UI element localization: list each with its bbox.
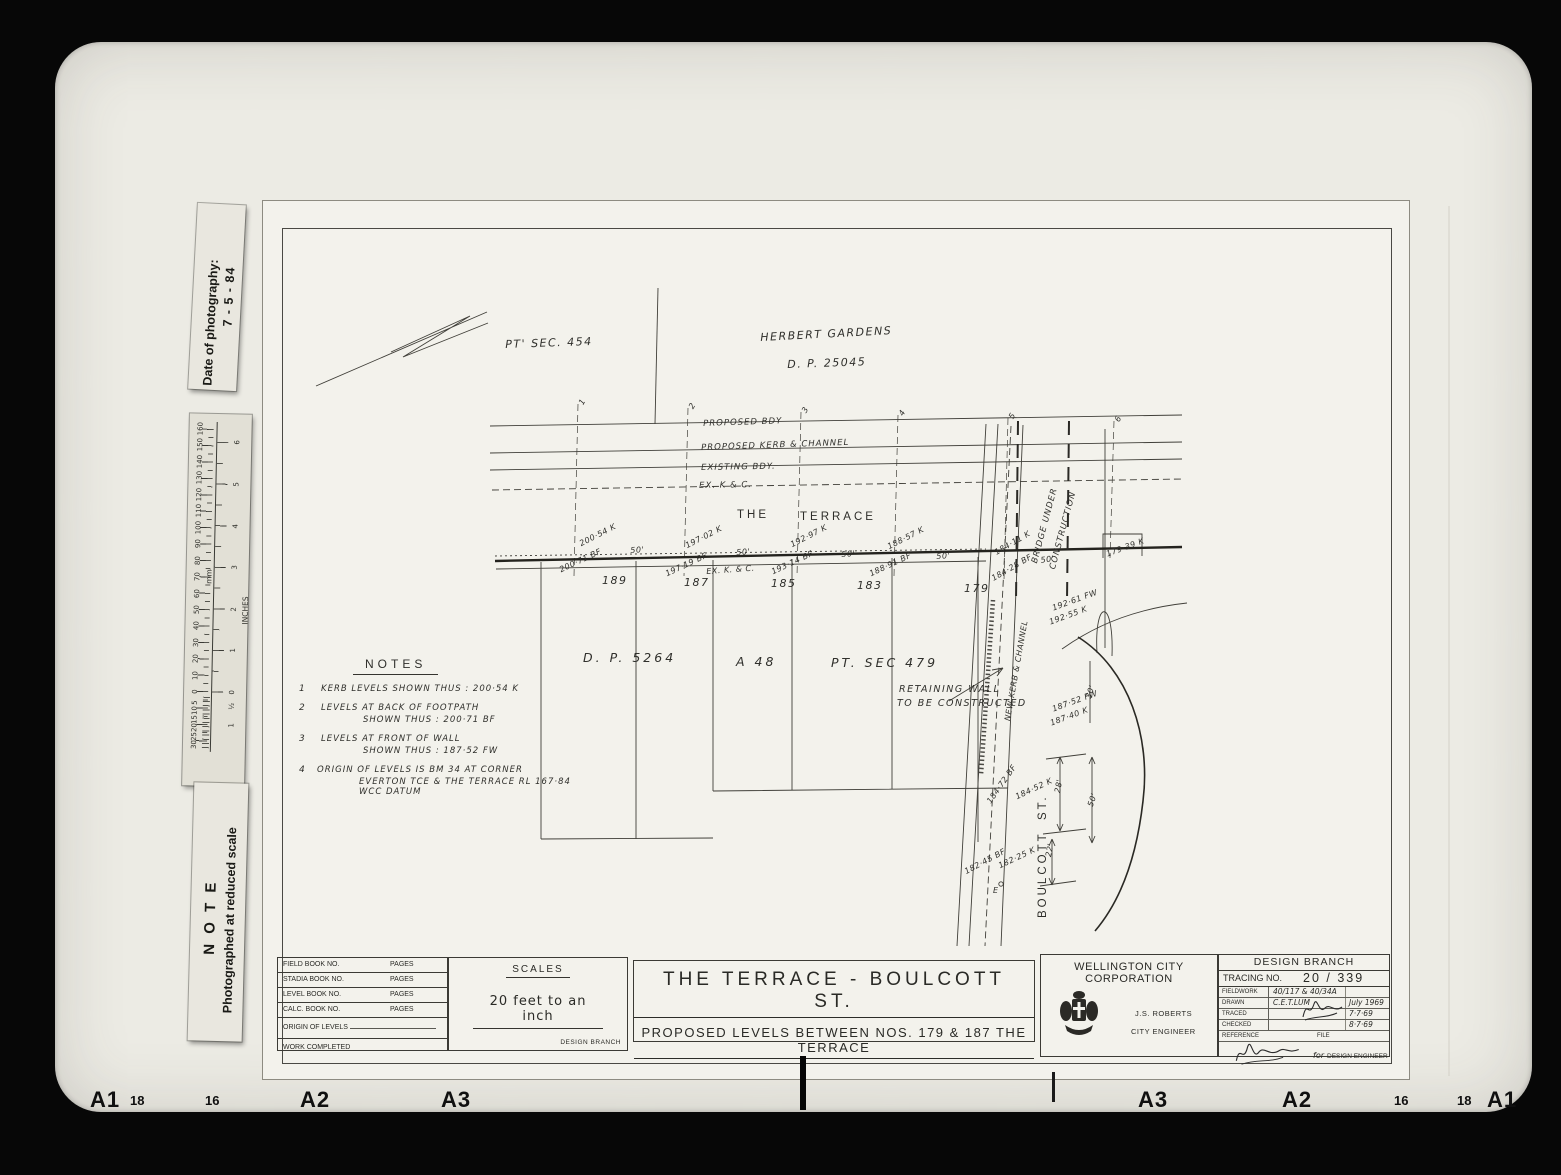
- ruler-tick-label: ½: [228, 703, 236, 710]
- survey-book-table: FIELD BOOK NO.PAGESSTADIA BOOK NO.PAGESL…: [277, 957, 448, 1051]
- ruler-tick-label: 1: [229, 648, 237, 653]
- plan-label: 179·39 K: [1105, 536, 1145, 558]
- tracing-number-row: TRACING NO. 20 / 339: [1219, 971, 1389, 987]
- ruler-tick-label: 5: [232, 482, 240, 487]
- ruler-tick-label: 3: [231, 565, 239, 570]
- note-label-title: N O T E: [201, 879, 220, 955]
- ruler-tick-label: 140: [196, 455, 204, 469]
- design-branch-row-date: 8·7·69: [1345, 1020, 1389, 1030]
- date-label-value: 7 - 5 - 84: [220, 266, 237, 327]
- plan-label: 185: [771, 577, 797, 590]
- note-text: LEVELS AT BACK OF FOOTPATHSHOWN THUS : 2…: [321, 703, 496, 725]
- ruler-labels: 1601501401301201101009080706050403020100…: [190, 413, 252, 414]
- plan-label: 188·57 K: [886, 525, 926, 551]
- ruler-tick-label: 110: [195, 504, 203, 518]
- ruler-tick-label: 1: [227, 723, 235, 728]
- checker-signature-mark: [1299, 997, 1345, 1028]
- note-line: EVERTON TCE & THE TERRACE RL 167·84 WCC …: [359, 777, 579, 797]
- plan-label: BOULCOTT: [1037, 831, 1049, 918]
- plan-label: E: [993, 886, 999, 895]
- plan-label: 193·14 BF: [770, 549, 815, 576]
- plan-label: 183: [857, 579, 883, 592]
- note-number: 3: [299, 734, 321, 756]
- plan-label: 184·72 BF: [985, 763, 1018, 805]
- note-line: LEVELS AT FRONT OF WALL: [321, 734, 498, 744]
- note-item: 4ORIGIN OF LEVELS IS BM 34 AT CORNEREVER…: [299, 765, 579, 797]
- ruler-tick-label: 0: [191, 689, 199, 694]
- plan-label: 6: [1113, 414, 1124, 423]
- drawing-title: THE TERRACE - BOULCOTT ST.: [634, 969, 1034, 1018]
- tracing-number-label: TRACING NO.: [1223, 973, 1282, 983]
- ruler-inches-unit: INCHES: [240, 596, 250, 624]
- scale-ruler: mm INCHES 160150140130120110100908070605…: [182, 413, 252, 786]
- survey-book-row: FIELD BOOK NO.PAGES: [278, 958, 447, 973]
- design-branch-row-label: TRACED: [1219, 1009, 1269, 1019]
- ruler-tick-label: 5: [191, 700, 199, 705]
- plan-label: 50': [630, 545, 644, 555]
- ruler-tick-label: 70: [193, 572, 201, 581]
- registration-mark: [800, 1056, 806, 1110]
- plan-label: 50': [936, 551, 950, 561]
- ruler-sub-ticks: [202, 697, 210, 749]
- design-branch-row-label: FIELDWORK: [1219, 987, 1269, 997]
- city-engineer-title: CITY ENGINEER: [1131, 1027, 1196, 1036]
- plan-label: D. P. 25045: [787, 355, 866, 371]
- drawing-subtitle: PROPOSED LEVELS BETWEEN NOS. 179 & 187 T…: [634, 1025, 1034, 1059]
- design-branch-box: DESIGN BRANCH TRACING NO. 20 / 339 FIELD…: [1218, 954, 1390, 1057]
- design-branch-row-date: 7·7·69: [1345, 1009, 1389, 1019]
- ruler-mm-unit: mm: [204, 569, 213, 584]
- scales-footer: DESIGN BRANCH: [560, 1039, 621, 1046]
- survey-book-label: FIELD BOOK NO.: [283, 961, 339, 968]
- plan-label: ST.: [1037, 794, 1049, 820]
- plan-label: 28': [1053, 778, 1064, 793]
- ruler-tick-label: 100: [194, 521, 202, 535]
- signature-for: for: [1313, 1051, 1324, 1060]
- reference-label: REFERENCE: [1222, 1033, 1259, 1039]
- scales-title: SCALES: [506, 964, 569, 978]
- origin-of-levels-row: ORIGIN OF LEVELS: [278, 1018, 447, 1039]
- note-item: 2LEVELS AT BACK OF FOOTPATHSHOWN THUS : …: [299, 703, 579, 725]
- ruler-tick-label: 120: [195, 488, 203, 502]
- plan-label: PT. SEC 479: [831, 655, 938, 670]
- plan-label: 50': [736, 547, 750, 557]
- note-number: 1: [299, 684, 321, 694]
- ruler-tick-label: 6: [233, 440, 241, 445]
- pages-label: PAGES: [390, 973, 414, 987]
- work-completed-row: WORK COMPLETED: [278, 1039, 447, 1057]
- survey-book-label: CALC. BOOK NO.: [283, 1006, 340, 1013]
- design-engineer-signature-row: for DESIGN ENGINEER: [1219, 1042, 1389, 1064]
- city-crest-icon: [1059, 989, 1099, 1044]
- scanned-engineering-plan: PT' SEC. 454HERBERT GARDENSD. P. 25045PR…: [0, 0, 1561, 1175]
- ruler-tick-label: 40: [192, 621, 200, 630]
- note-text: ORIGIN OF LEVELS IS BM 34 AT CORNEREVERT…: [317, 765, 579, 797]
- note-label-text: Photographed at reduced scale: [220, 827, 239, 1013]
- ruler-tick-label: 20: [192, 654, 200, 663]
- design-branch-row-label: DRAWN: [1219, 998, 1269, 1008]
- plan-label: A 48: [736, 654, 776, 669]
- plan-label: 197·19 BF: [664, 551, 709, 578]
- design-engineer-title: DESIGN ENGINEER: [1327, 1053, 1388, 1060]
- ruler-tick-label: 30: [190, 740, 198, 749]
- plan-label: EX. K. & C.: [706, 564, 755, 576]
- ruler-tick-label: 50: [193, 605, 201, 614]
- ruler-tick-label: 2: [230, 607, 238, 612]
- tracing-number-value: 20 / 339: [1303, 971, 1364, 986]
- plan-label: RETAINING WALL: [899, 684, 1000, 695]
- file-label: FILE: [1317, 1031, 1330, 1041]
- origin-of-levels-line: [350, 1028, 436, 1029]
- plan-label: 192·97 K: [789, 523, 829, 549]
- plan-label: 2: [687, 401, 698, 410]
- plan-label: EXISTING BDY.: [701, 462, 776, 473]
- design-branch-row-date: July 1969: [1345, 998, 1389, 1008]
- survey-book-row: STADIA BOOK NO.PAGES: [278, 973, 447, 988]
- design-branch-row-date: [1345, 987, 1389, 997]
- plan-label: 50': [841, 549, 855, 559]
- plan-label: 3: [800, 405, 811, 414]
- scale-value: 20 feet to an inch: [473, 994, 603, 1029]
- corporation-name: WELLINGTON CITY CORPORATION: [1041, 961, 1217, 985]
- plan-label: 200·54 K: [578, 522, 618, 548]
- plan-label: TO BE CONSTRUCTED: [897, 698, 1027, 709]
- note-line: ORIGIN OF LEVELS IS BM 34 AT CORNER: [317, 765, 579, 775]
- pages-label: PAGES: [390, 988, 414, 1002]
- date-label-title: Date of photography:: [200, 259, 221, 386]
- note-item: 3LEVELS AT FRONT OF WALLSHOWN THUS : 187…: [299, 734, 579, 756]
- city-engineer-name: J.S. ROBERTS: [1135, 1009, 1192, 1018]
- plan-label: D. P. 5264: [583, 650, 676, 665]
- note-number: 4: [299, 765, 317, 797]
- plan-label: 179: [964, 582, 990, 595]
- reduced-scale-note-label: N O T E Photographed at reduced scale: [188, 782, 249, 1041]
- plan-label: THE: [737, 509, 769, 521]
- ruler-tick-label: 10: [191, 671, 199, 680]
- ruler-tick-label: 30: [192, 638, 200, 647]
- ruler-tick-label: 60: [193, 589, 201, 598]
- ruler-tick-label: 20: [190, 723, 198, 732]
- notes-items: 1KERB LEVELS SHOWN THUS : 200·54 K2LEVEL…: [299, 684, 579, 797]
- ruler-tick-label: 80: [194, 556, 202, 565]
- pages-label: PAGES: [390, 958, 414, 972]
- survey-book-row: LEVEL BOOK NO.PAGES: [278, 988, 447, 1003]
- corporation-box: WELLINGTON CITY CORPORATION J.S. ROBERTS…: [1040, 954, 1218, 1057]
- plan-label: HERBERT GARDENS: [760, 324, 893, 344]
- survey-book-label: LEVEL BOOK NO.: [283, 991, 341, 998]
- notes-title: NOTES: [353, 657, 438, 675]
- plan-label: 197·02 K: [684, 524, 724, 550]
- design-branch-header: DESIGN BRANCH: [1219, 955, 1389, 971]
- note-number: 2: [299, 703, 321, 725]
- note-text: KERB LEVELS SHOWN THUS : 200·54 K: [321, 684, 519, 694]
- plan-label: 5: [1007, 411, 1018, 420]
- survey-book-row: CALC. BOOK NO.PAGES: [278, 1003, 447, 1018]
- ruler-tick-label: 4: [232, 524, 240, 529]
- ruler-tick-label: 10: [191, 706, 199, 715]
- note-line: SHOWN THUS : 200·71 BF: [363, 715, 496, 725]
- scales-box: SCALES 20 feet to an inch DESIGN BRANCH: [448, 957, 628, 1051]
- note-item: 1KERB LEVELS SHOWN THUS : 200·54 K: [299, 684, 579, 694]
- note-text: LEVELS AT FRONT OF WALLSHOWN THUS : 187·…: [321, 734, 498, 756]
- note-line: SHOWN THUS : 187·52 FW: [363, 746, 498, 756]
- ruler-tick-label: 150: [196, 438, 204, 452]
- plan-label: 187: [684, 576, 710, 589]
- design-branch-row-value: 40/117 & 40/34A: [1269, 987, 1345, 997]
- drawing-title-box: THE TERRACE - BOULCOTT ST. PROPOSED LEVE…: [633, 960, 1035, 1042]
- ruler-tick-label: 90: [194, 539, 202, 548]
- plan-label: PROPOSED BDY: [703, 416, 782, 429]
- plan-label: 184·28 BF: [990, 552, 1034, 582]
- plan-label: 4: [897, 408, 908, 417]
- plan-label: EX. K & C.: [699, 480, 752, 491]
- plan-label: PROPOSED KERB & CHANNEL: [701, 438, 849, 453]
- date-of-photography-label: Date of photography: 7 - 5 - 84: [188, 203, 246, 391]
- registration-mark: [1052, 1072, 1055, 1102]
- survey-book-label: STADIA BOOK NO.: [283, 976, 344, 983]
- note-line: LEVELS AT BACK OF FOOTPATH: [321, 703, 496, 713]
- pages-label: PAGES: [390, 1003, 414, 1017]
- note-line: KERB LEVELS SHOWN THUS : 200·54 K: [321, 684, 519, 694]
- plan-label: 50': [1086, 792, 1099, 808]
- origin-of-levels-label: ORIGIN OF LEVELS: [283, 1024, 348, 1031]
- plan-label: 189: [602, 574, 628, 587]
- plan-label: 200·71 BF: [558, 547, 603, 574]
- design-branch-row-label: CHECKED: [1219, 1020, 1269, 1030]
- ruler-tick-label: 0: [228, 690, 236, 695]
- ruler-tick-label: 130: [195, 471, 203, 485]
- plan-label: PT' SEC. 454: [505, 335, 593, 351]
- ruler-tick-label: 160: [196, 422, 204, 436]
- plan-label: 188·91 BF: [868, 551, 913, 578]
- notes-block: NOTES 1KERB LEVELS SHOWN THUS : 200·54 K…: [299, 653, 579, 797]
- plan-label: 1: [577, 397, 588, 406]
- survey-book-rows: FIELD BOOK NO.PAGESSTADIA BOOK NO.PAGESL…: [278, 958, 447, 1018]
- plan-label: TERRACE: [800, 511, 876, 523]
